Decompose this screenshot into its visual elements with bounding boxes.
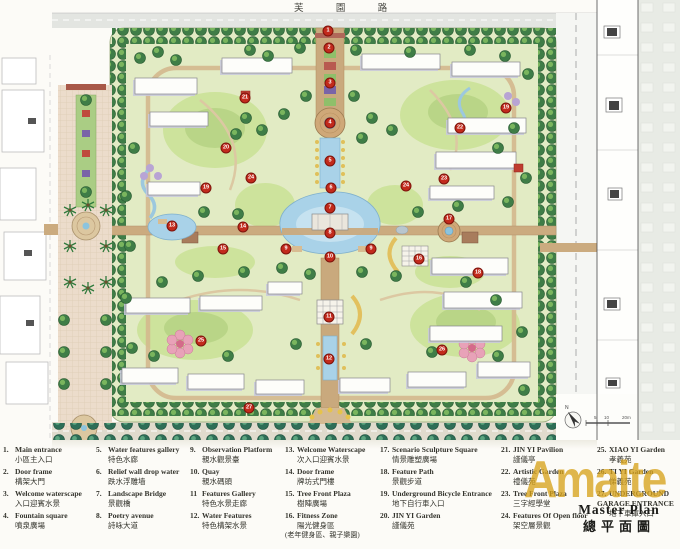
master-plan-drawing: N 5 10 20m — [0, 0, 680, 440]
legend-item: 18.Feature Path景觀步道 — [380, 467, 500, 487]
legend-item: 8.Poetry avenue詩咏大道 — [96, 511, 189, 531]
legend-item: 26.TI YI Garden悌義苑 — [597, 467, 679, 487]
east-road — [556, 13, 597, 430]
legend-column: 5.Water features gallery特色水廊6.Relief wal… — [96, 445, 189, 533]
legend-item: 4.Fountain square噴泉廣場 — [3, 511, 95, 531]
legend-item: 13.Welcome Waterscape次入口迎賓水景 — [285, 445, 379, 465]
legend-item: 25.XIAO YI Garden孝義苑 — [597, 445, 679, 465]
legend-column: 13.Welcome Waterscape次入口迎賓水景14.Door fram… — [285, 445, 379, 542]
legend-item: 21.JIN YI Pavilion謹儀亭 — [501, 445, 597, 465]
street-trees — [52, 423, 597, 440]
master-plan-sheet: N 5 10 20m 芙 園 路 12345678991011121314151… — [0, 0, 680, 549]
north-label: N — [565, 405, 569, 411]
east-context — [597, 0, 680, 440]
legend-column: 1.Main entrance小區主入口2.Door frame構架大門3.We… — [3, 445, 95, 533]
north-road — [52, 13, 597, 28]
legend-item: 2.Door frame構架大門 — [3, 467, 95, 487]
scale-tick-20m: 20m — [622, 415, 631, 420]
sheet-title-en: Master Plan — [560, 502, 678, 518]
legend-item: 14.Door frame牌坊式門樓 — [285, 467, 379, 487]
west-boulevard — [58, 84, 112, 440]
legend-column: 17.Scenario Sculpture Square情景雕塑廣場18.Fea… — [380, 445, 500, 533]
legend-item: 15.Tree Front Plaza樹陣廣場 — [285, 489, 379, 509]
sheet-title-zh: 總平面圖 — [560, 518, 678, 536]
legend-item: 22.Artistic Garden禮儀苑 — [501, 467, 597, 487]
legend-item: 3.Welcome waterscape入口迎賓水景 — [3, 489, 95, 509]
legend-item: 9.Observation Platform親水觀景臺 — [190, 445, 284, 465]
north-road-label: 芙 園 路 — [294, 0, 402, 14]
legend-item: 17.Scenario Sculpture Square情景雕塑廣場 — [380, 445, 500, 465]
legend-item: 5.Water features gallery特色水廊 — [96, 445, 189, 465]
plan-drawing-area: N 5 10 20m 芙 園 路 12345678991011121314151… — [0, 0, 680, 440]
scale-tick-10: 10 — [604, 415, 610, 420]
legend-item: 12.Water Features特色構架水景 — [190, 511, 284, 531]
legend-item: 10.Quay親水碼頭 — [190, 467, 284, 487]
legend-item: 11Features Gallery特色水景走廊 — [190, 489, 284, 509]
title-block: Master Plan 總平面圖 — [560, 502, 678, 536]
legend-item: 19.Underground Bicycle Entrance地下自行車入口 — [380, 489, 500, 509]
legend-column: 9.Observation Platform親水觀景臺10.Quay親水碼頭11… — [190, 445, 284, 533]
legend-item: 7.Landscape Bridge景觀橋 — [96, 489, 189, 509]
legend-item: 6.Relief wall drop water跌水浮雕墙 — [96, 467, 189, 487]
legend-item: 16.Fitness Zone陽光健身區(老年健身區、親子樂園) — [285, 511, 379, 540]
legend-item: 1.Main entrance小區主入口 — [3, 445, 95, 465]
legend-item: 20.JIN YI Garden謹儀苑 — [380, 511, 500, 531]
